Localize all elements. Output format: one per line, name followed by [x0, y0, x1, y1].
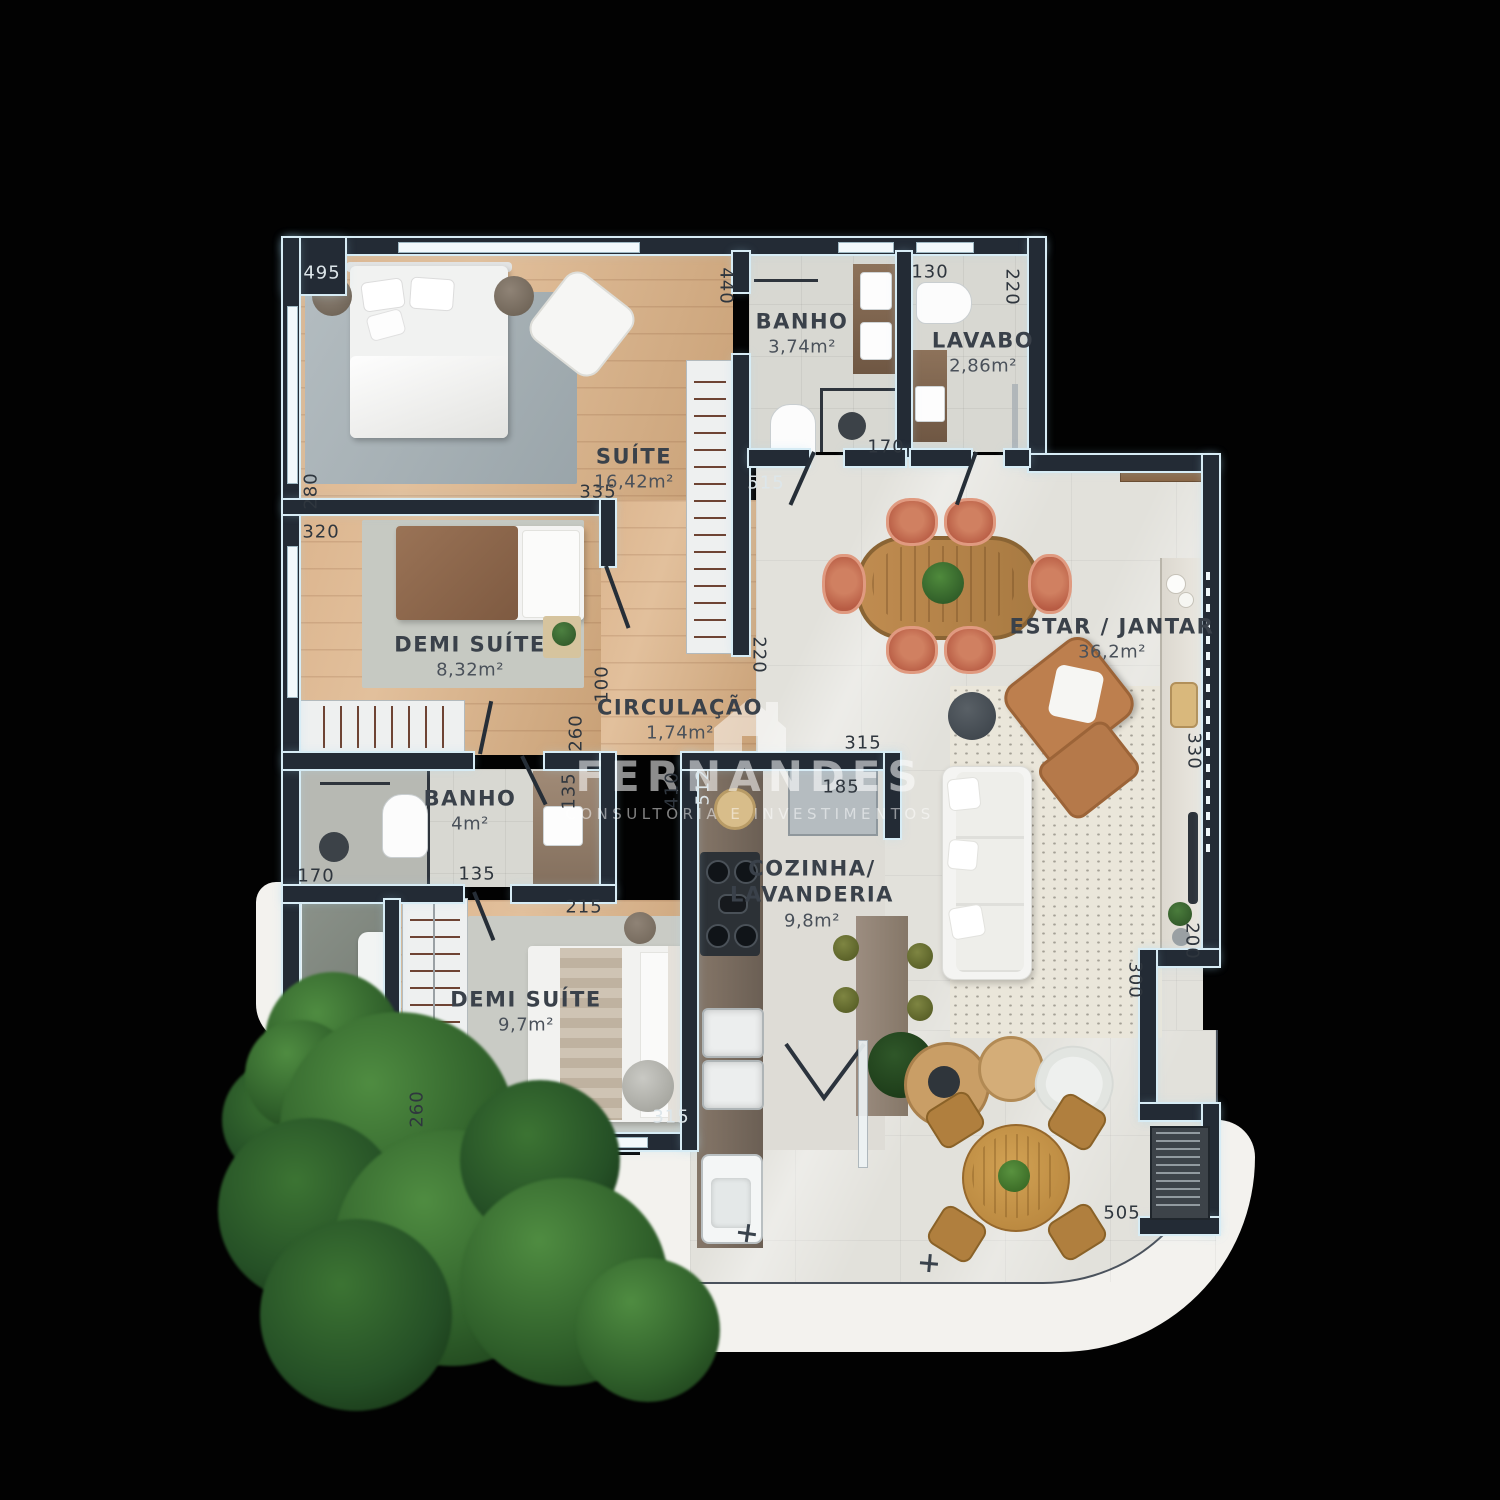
wall-demi1-bottom — [545, 753, 605, 769]
suite-nightstand — [494, 276, 534, 316]
wall-banho2-bottom — [512, 886, 615, 902]
kitchen-sink — [702, 1060, 764, 1110]
dining-chair — [1028, 554, 1072, 614]
island-stool — [833, 935, 859, 961]
lavabo-toilet — [916, 282, 972, 324]
window-banho1-top — [838, 242, 894, 253]
railing-tick — [737, 1223, 757, 1243]
wall-banho1-bottom — [749, 450, 809, 466]
sliding-door-glass — [858, 1040, 868, 1168]
dining-chair — [822, 554, 866, 614]
banho1-sink — [860, 322, 892, 360]
window-lavabo-top — [916, 242, 974, 253]
window-suite-left — [287, 306, 298, 484]
wall-banho2-right — [601, 753, 615, 900]
kitchen-wood-bowl — [714, 788, 756, 830]
window-dashed-right — [1206, 572, 1210, 858]
demi1-plant — [552, 622, 576, 646]
wall-estar-top — [1029, 455, 1219, 471]
wall-banho2-bottom — [283, 886, 463, 902]
banho2-towel-bar — [320, 782, 390, 785]
wall-kitchen-top — [682, 753, 900, 769]
wall-closet-banho — [733, 355, 749, 655]
suite-pillow — [360, 277, 406, 313]
wall-lavabo-bottom — [911, 450, 971, 466]
wall-banho1-left-stub — [733, 252, 749, 292]
demi1-duvet — [396, 526, 518, 620]
banho1-shower-head — [838, 412, 866, 440]
railing-tick — [919, 1253, 939, 1273]
laundry-tank-basin — [711, 1178, 751, 1228]
dining-chair — [886, 498, 938, 546]
wall-kitchen-right-stub — [885, 753, 900, 838]
door-swing-marker — [780, 1040, 870, 1104]
dining-plant — [922, 562, 964, 604]
wall-demi1-bottom — [283, 753, 473, 769]
dining-chair — [944, 626, 996, 674]
suite-closet — [686, 360, 734, 654]
banho1-sink — [860, 272, 892, 310]
ac-louver-fins — [1156, 1132, 1200, 1210]
counter-dish — [1166, 574, 1186, 594]
banho1-shower-glass — [820, 388, 823, 452]
banho2-toilet — [382, 794, 428, 858]
dining-chair — [944, 498, 996, 546]
wall-deco-panel — [1188, 812, 1198, 904]
window-suite-top — [398, 242, 640, 253]
balcony-plant — [998, 1160, 1030, 1192]
wall-demi1-right — [601, 500, 615, 566]
sofa-pillow — [947, 839, 980, 872]
island-stool — [907, 943, 933, 969]
demi2-nightstand — [622, 1060, 674, 1112]
stove-burner — [706, 924, 730, 948]
island-stool — [907, 995, 933, 1021]
wall-banho1-bottom — [845, 450, 905, 466]
lavabo-sink — [915, 386, 945, 422]
demi2-stool — [624, 912, 656, 944]
lavabo-glass-panel — [1012, 384, 1018, 460]
dimension-label: 410 — [662, 771, 683, 808]
banho2-sink — [543, 806, 583, 846]
kitchen-cabinet — [788, 768, 878, 836]
demi1-pillows — [522, 530, 580, 618]
stove-burner — [734, 924, 758, 948]
kitchen-sink — [702, 1008, 764, 1058]
sofa-pillow — [946, 776, 981, 811]
wall-step-v — [1140, 950, 1156, 1120]
cutting-board — [1170, 682, 1198, 728]
counter-plant — [1168, 902, 1192, 926]
wall-suite-bottom — [283, 500, 613, 514]
demi1-wardrobe — [300, 700, 465, 754]
sofa-pillow — [947, 903, 986, 940]
side-table-round — [948, 692, 996, 740]
stove-burner — [734, 860, 758, 884]
banho1-shower-glass — [820, 388, 897, 391]
wall-lavabo-right — [1029, 238, 1045, 471]
counter-dish — [1178, 592, 1194, 608]
banho1-towel-bar — [754, 279, 818, 282]
suite-pillow — [409, 277, 455, 312]
suite-duvet — [350, 356, 508, 438]
floorplan-render: FERNANDES CONSULTORIA E INVESTIMENTOS 49… — [0, 0, 1500, 1500]
wall-lavabo-bottom — [1005, 450, 1029, 466]
island-stool — [833, 987, 859, 1013]
counter-vase — [1172, 928, 1190, 946]
coffee-table — [978, 1036, 1044, 1102]
dining-chair — [886, 626, 938, 674]
window-demi1-left — [287, 546, 298, 698]
stove-burner — [706, 860, 730, 884]
wall-banho-lavabo — [897, 252, 911, 457]
wall-ac-bottom — [1140, 1218, 1219, 1234]
stove-center — [718, 894, 748, 914]
banho2-shower-head — [319, 832, 349, 862]
wall-kitchen-left — [682, 753, 697, 1150]
sideboard-counter — [1160, 558, 1206, 950]
